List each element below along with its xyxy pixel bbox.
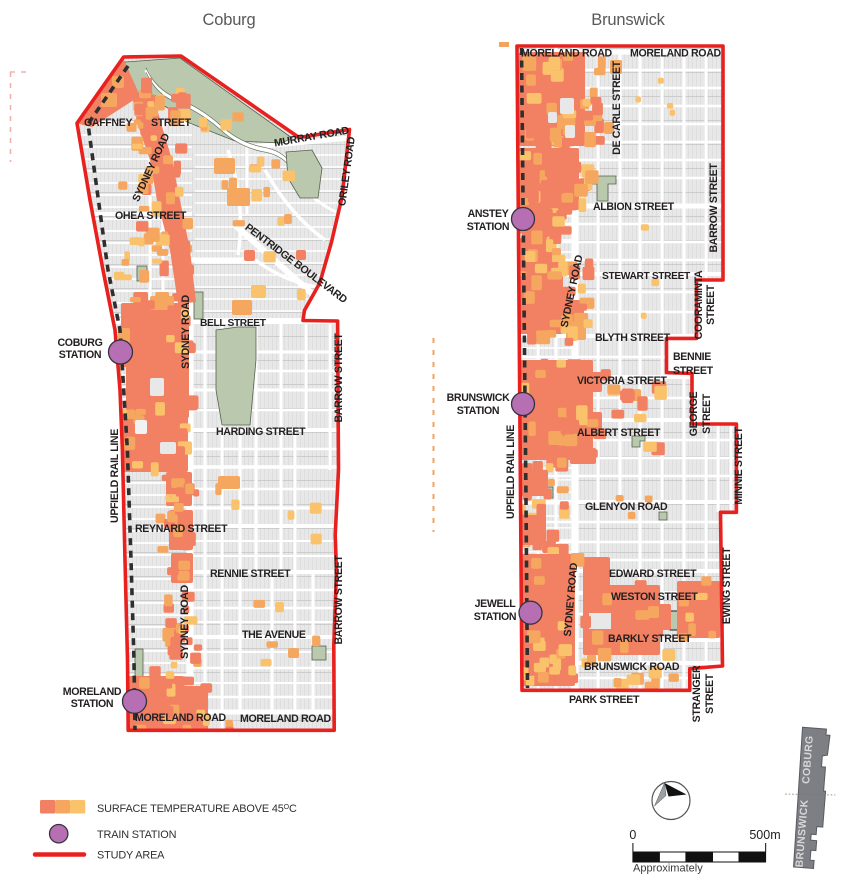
svg-text:BARROW STREET: BARROW STREET — [333, 333, 345, 423]
svg-text:BARROW STREET: BARROW STREET — [333, 555, 345, 645]
svg-text:BELL STREET: BELL STREET — [200, 318, 267, 329]
svg-text:MORELAND ROAD: MORELAND ROAD — [240, 713, 331, 725]
svg-text:STREET: STREET — [151, 117, 192, 129]
svg-text:GLENYON ROAD: GLENYON ROAD — [585, 501, 668, 513]
svg-text:COBURG: COBURG — [58, 337, 103, 349]
svg-text:0: 0 — [629, 828, 636, 842]
svg-text:STUDY AREA: STUDY AREA — [97, 850, 165, 862]
svg-text:ALBERT STREET: ALBERT STREET — [577, 427, 661, 439]
svg-text:RENNIE STREET: RENNIE STREET — [210, 568, 291, 580]
svg-text:ANSTEY: ANSTEY — [468, 208, 509, 220]
svg-text:UPFIELD RAIL LINE: UPFIELD RAIL LINE — [109, 429, 121, 523]
svg-text:GEORGE: GEORGE — [688, 392, 700, 437]
svg-text:MINNIE STREET: MINNIE STREET — [733, 426, 745, 504]
svg-text:Approximately: Approximately — [633, 863, 703, 875]
svg-text:BRUNSWICK ROAD: BRUNSWICK ROAD — [584, 661, 680, 673]
svg-text:EWING STREET: EWING STREET — [721, 547, 733, 624]
svg-text:SYDNEY ROAD: SYDNEY ROAD — [179, 584, 191, 658]
svg-text:STRANGER: STRANGER — [691, 665, 703, 722]
svg-text:BARROW STREET: BARROW STREET — [708, 163, 720, 253]
svg-text:BARKLY STREET: BARKLY STREET — [608, 633, 692, 645]
svg-text:GAFFNEY: GAFFNEY — [84, 117, 132, 129]
svg-text:TRAIN STATION: TRAIN STATION — [97, 829, 176, 841]
svg-text:EDWARD STREET: EDWARD STREET — [609, 568, 697, 580]
svg-text:STREET: STREET — [673, 365, 714, 377]
svg-text:HARDING STREET: HARDING STREET — [216, 426, 306, 438]
svg-text:STEWART STREET: STEWART STREET — [602, 271, 691, 282]
svg-text:Brunswick: Brunswick — [591, 11, 665, 29]
svg-text:SYDNEY ROAD: SYDNEY ROAD — [180, 294, 192, 368]
svg-text:DE CARLE STREET: DE CARLE STREET — [611, 60, 623, 155]
svg-text:STREET: STREET — [704, 673, 716, 714]
svg-text:BLYTH STREET: BLYTH STREET — [595, 332, 671, 344]
svg-text:STATION: STATION — [474, 611, 516, 623]
svg-text:THE AVENUE: THE AVENUE — [242, 629, 306, 641]
svg-text:MORELAND ROAD: MORELAND ROAD — [521, 48, 612, 60]
svg-text:PARK STREET: PARK STREET — [569, 694, 640, 706]
svg-text:BENNIE: BENNIE — [673, 351, 711, 363]
svg-text:BRUNSWICK: BRUNSWICK — [447, 392, 510, 404]
svg-text:500m: 500m — [749, 828, 780, 842]
svg-text:STATION: STATION — [59, 349, 101, 361]
svg-text:MORELAND ROAD: MORELAND ROAD — [135, 712, 226, 724]
svg-text:JEWELL: JEWELL — [475, 598, 517, 610]
svg-text:STATION: STATION — [71, 698, 113, 710]
svg-text:COORAMINTA: COORAMINTA — [693, 270, 705, 339]
svg-text:STREET: STREET — [705, 284, 717, 325]
svg-text:MORELAND ROAD: MORELAND ROAD — [630, 48, 721, 60]
svg-text:REYNARD STREET: REYNARD STREET — [135, 523, 228, 535]
svg-text:STATION: STATION — [457, 405, 499, 417]
svg-text:MORELAND: MORELAND — [63, 686, 122, 698]
svg-text:STATION: STATION — [467, 221, 509, 233]
svg-text:ALBION STREET: ALBION STREET — [593, 201, 675, 213]
svg-text:VICTORIA STREET: VICTORIA STREET — [577, 375, 667, 387]
svg-text:WESTON STREET: WESTON STREET — [611, 591, 698, 603]
svg-text:UPFIELD RAIL LINE: UPFIELD RAIL LINE — [505, 425, 517, 519]
svg-text:STREET: STREET — [701, 393, 713, 434]
svg-text:SURFACE TEMPERATURE ABOVE 45OC: SURFACE TEMPERATURE ABOVE 45OC — [97, 803, 297, 815]
svg-text:OHEA STREET: OHEA STREET — [115, 210, 187, 222]
svg-text:Coburg: Coburg — [203, 11, 256, 29]
